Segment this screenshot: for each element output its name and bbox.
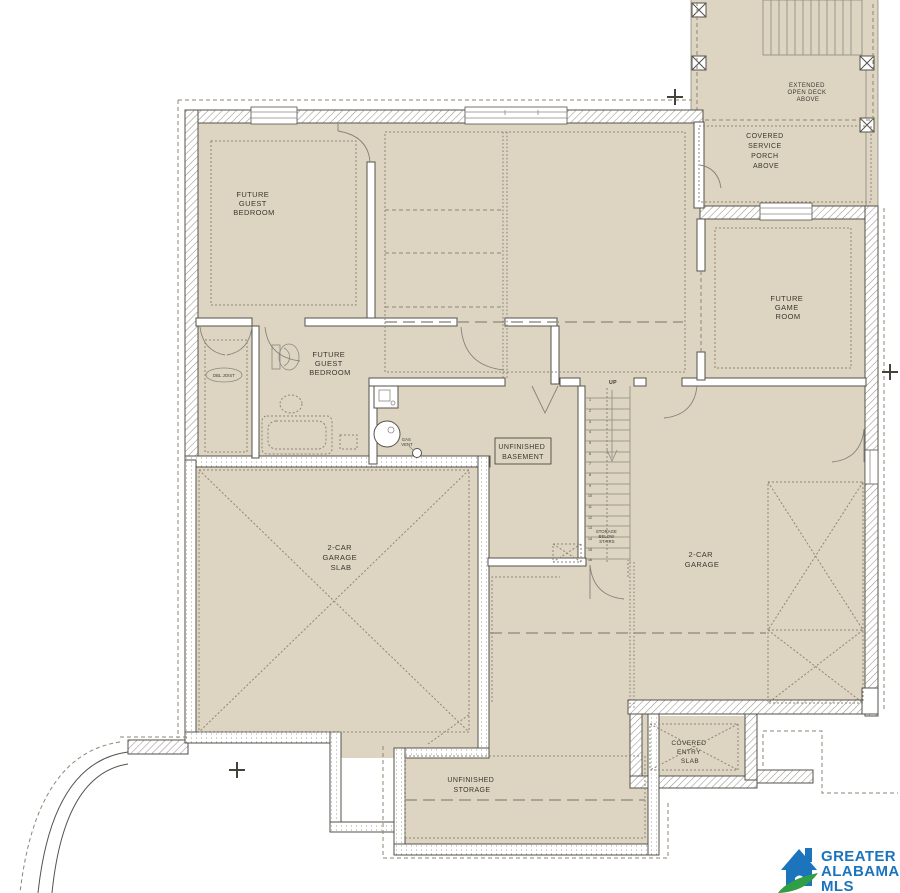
label-line: VENT: [401, 442, 413, 447]
label-line: COVERED: [671, 740, 706, 747]
label-line: FUTURE: [770, 294, 803, 303]
stair-number: 5: [589, 441, 591, 445]
label-line: FUTURE: [236, 190, 269, 199]
storage-bottom-wall: [394, 844, 659, 855]
stair-number: 12: [588, 516, 592, 520]
label-line: OPEN DECK: [787, 90, 826, 96]
column-symbol: [860, 56, 874, 70]
hall-wall: [305, 318, 457, 326]
label-line: COVERED: [746, 133, 783, 140]
label-line: BEDROOM: [309, 368, 351, 377]
stair-number: 11: [588, 505, 592, 509]
gameroom-left-wall: [697, 219, 705, 271]
cross-marker: [667, 89, 683, 105]
label-line: ENTRY: [677, 749, 701, 756]
label-line: GUEST: [315, 359, 343, 368]
label-line: GARAGE: [323, 553, 358, 562]
retaining-arc-inner: [52, 764, 128, 893]
storage-left-wall: [394, 748, 405, 855]
stair-left-wall: [578, 386, 585, 564]
bedroom2-right-wall: [551, 326, 559, 384]
room-label-guest-bedroom-2: FUTURE GUEST BEDROOM: [309, 350, 351, 377]
stair-number: 16: [588, 558, 592, 562]
deck-floor: [691, 0, 878, 122]
stair-number: 2: [589, 409, 591, 413]
foundation-step-horizontal: [330, 822, 404, 832]
left-wall: [185, 110, 198, 464]
utility-top-wall: [369, 378, 505, 386]
label-line: GUEST: [239, 199, 267, 208]
retaining-wall-arcs: [38, 752, 128, 893]
dbl-joist-label: DBL JOIST: [213, 373, 235, 378]
gameroom-bottom-wall: [634, 378, 646, 386]
stair-hall-wall: [560, 378, 580, 386]
room-label-garage: 2-CAR GARAGE: [685, 550, 720, 569]
stair-number: 7: [589, 462, 591, 466]
entry-stub-wall: [757, 770, 813, 783]
stair-number: 1: [589, 398, 591, 402]
stair-number: 4: [589, 430, 591, 434]
stair-number: 15: [588, 548, 592, 552]
bedroom1-right-wall: [367, 162, 375, 320]
closet-divider-wall: [252, 326, 259, 458]
label-line: UNFINISHED: [447, 777, 494, 784]
left-wall-lower: [185, 460, 196, 743]
label-line: PORCH: [751, 153, 778, 160]
garage-slab-top-wall: [185, 456, 490, 467]
label-line: BASEMENT: [502, 454, 544, 461]
stair-number: 3: [589, 420, 591, 424]
stair-number: 13: [588, 526, 592, 530]
corridor-bottom-wall: [488, 558, 586, 566]
bedroom1-bottom-wall: [196, 318, 252, 326]
entry-outer-dashed: [763, 731, 898, 793]
label-line: ABOVE: [797, 97, 820, 103]
garage-slab-right-wall: [478, 456, 489, 748]
garage-bottom-wall: [628, 700, 878, 714]
label-line: BEDROOM: [233, 208, 275, 217]
label-line: SERVICE: [748, 143, 781, 150]
column-symbol: [692, 3, 706, 17]
label-line: STORAGE: [454, 787, 491, 794]
room-label-guest-bedroom-1: FUTURE GUEST BEDROOM: [233, 190, 275, 217]
column-symbol: [692, 56, 706, 70]
label-line: FUTURE: [312, 350, 345, 359]
basement-floor-plan: 1 2 3 4 5 6 7 8 9 10 11 12 13 14 15 16: [0, 0, 900, 893]
stair-number: 9: [589, 484, 591, 488]
garage-slab-bottom-wall: [185, 732, 341, 743]
stair-number: 14: [588, 537, 592, 541]
floor-areas: [190, 0, 878, 850]
label-line: STAIRS: [599, 539, 615, 544]
entry-right-wall: [745, 714, 757, 780]
logo-text: GREATER ALABAMA MLS: [821, 848, 900, 893]
label-line: 2-CAR: [689, 550, 714, 559]
stair-number: 10: [588, 494, 592, 498]
up-label: UP: [609, 380, 617, 386]
label-line: ABOVE: [753, 163, 779, 170]
label-line: 2-CAR: [328, 543, 353, 552]
label-line: GAME: [775, 303, 799, 312]
gameroom-left-wall: [697, 352, 705, 380]
cross-marker: [229, 762, 245, 778]
water-heater: [374, 421, 400, 447]
window: [251, 107, 297, 124]
window: [865, 450, 878, 484]
retaining-arc-outer: [38, 752, 128, 893]
furnace: [374, 386, 398, 408]
label-line: SLAB: [681, 758, 699, 765]
label-line: GARAGE: [685, 560, 720, 569]
stair-number: 6: [589, 452, 591, 456]
foundation-step-vertical: [330, 732, 341, 832]
label-line: UNFINISHED: [498, 444, 545, 451]
window: [465, 107, 567, 124]
garage-door-pier: [862, 688, 878, 714]
greater-alabama-mls-logo: GREATER ALABAMA MLS: [778, 848, 900, 893]
retaining-wall-stub: [128, 740, 188, 754]
room-label-game-room: FUTURE GAME ROOM: [770, 294, 805, 321]
room-label-unfinished-basement: UNFINISHED BASEMENT: [495, 438, 551, 464]
retaining-outer-dashed: [20, 737, 190, 893]
gas-vent-label: GAS VENT: [401, 437, 413, 447]
window: [760, 203, 812, 220]
label-line: MLS: [821, 878, 854, 893]
label-line: EXTENDED: [789, 83, 825, 89]
label-line: ROOM: [776, 312, 801, 321]
floor-plan-page: 1 2 3 4 5 6 7 8 9 10 11 12 13 14 15 16: [0, 0, 900, 893]
gameroom-bottom-wall: [682, 378, 866, 386]
stair-number: 8: [589, 473, 591, 477]
label-line: SLAB: [331, 563, 352, 572]
